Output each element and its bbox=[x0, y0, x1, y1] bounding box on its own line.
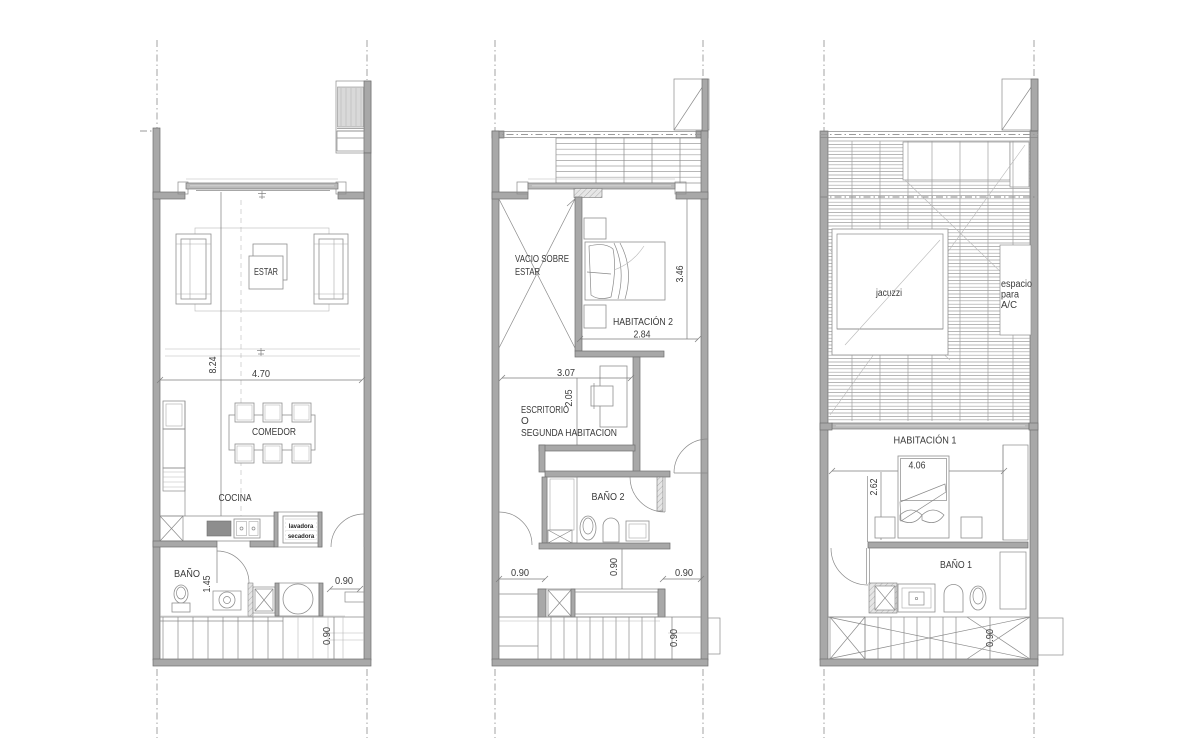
svg-text:para: para bbox=[1001, 290, 1019, 301]
svg-text:BAÑO 1: BAÑO 1 bbox=[940, 558, 972, 571]
svg-text:3.46: 3.46 bbox=[675, 265, 686, 282]
svg-text:A/C: A/C bbox=[1001, 300, 1017, 311]
svg-text:4.06: 4.06 bbox=[909, 461, 926, 472]
svg-text:BAÑO: BAÑO bbox=[174, 567, 200, 580]
svg-text:0.90: 0.90 bbox=[335, 576, 353, 587]
svg-text:espacio: espacio bbox=[1001, 279, 1032, 290]
svg-text:ESCRITORIO: ESCRITORIO bbox=[521, 405, 569, 416]
svg-text:1.45: 1.45 bbox=[202, 575, 213, 592]
svg-text:COCINA: COCINA bbox=[219, 493, 252, 504]
svg-text:lavadora: lavadora bbox=[289, 524, 314, 530]
svg-text:3.07: 3.07 bbox=[557, 368, 575, 379]
svg-text:0.90: 0.90 bbox=[669, 629, 680, 647]
svg-text:secadora: secadora bbox=[288, 534, 315, 540]
svg-text:HABITACIÓN 2: HABITACIÓN 2 bbox=[613, 315, 673, 328]
svg-text:2.62: 2.62 bbox=[869, 478, 880, 495]
svg-text:ESTAR: ESTAR bbox=[515, 267, 540, 278]
svg-text:0.90: 0.90 bbox=[985, 629, 996, 647]
svg-text:0.90: 0.90 bbox=[322, 627, 333, 645]
svg-text:0.90: 0.90 bbox=[675, 568, 693, 579]
svg-text:VACIO SOBRE: VACIO SOBRE bbox=[515, 254, 569, 265]
svg-text:jacuzzi: jacuzzi bbox=[875, 288, 902, 299]
svg-text:COMEDOR: COMEDOR bbox=[252, 427, 296, 438]
svg-text:BAÑO 2: BAÑO 2 bbox=[592, 490, 625, 503]
svg-text:0.90: 0.90 bbox=[511, 568, 529, 579]
svg-text:8.24: 8.24 bbox=[208, 356, 219, 373]
svg-text:0.90: 0.90 bbox=[609, 558, 620, 576]
svg-text:ESTAR: ESTAR bbox=[254, 267, 278, 278]
svg-text:HABITACIÓN 1: HABITACIÓN 1 bbox=[894, 434, 957, 447]
svg-text:O: O bbox=[521, 416, 529, 427]
svg-text:2.05: 2.05 bbox=[564, 389, 575, 406]
svg-text:4.70: 4.70 bbox=[252, 369, 270, 380]
svg-text:SEGUNDA HABITACION: SEGUNDA HABITACION bbox=[521, 428, 617, 439]
